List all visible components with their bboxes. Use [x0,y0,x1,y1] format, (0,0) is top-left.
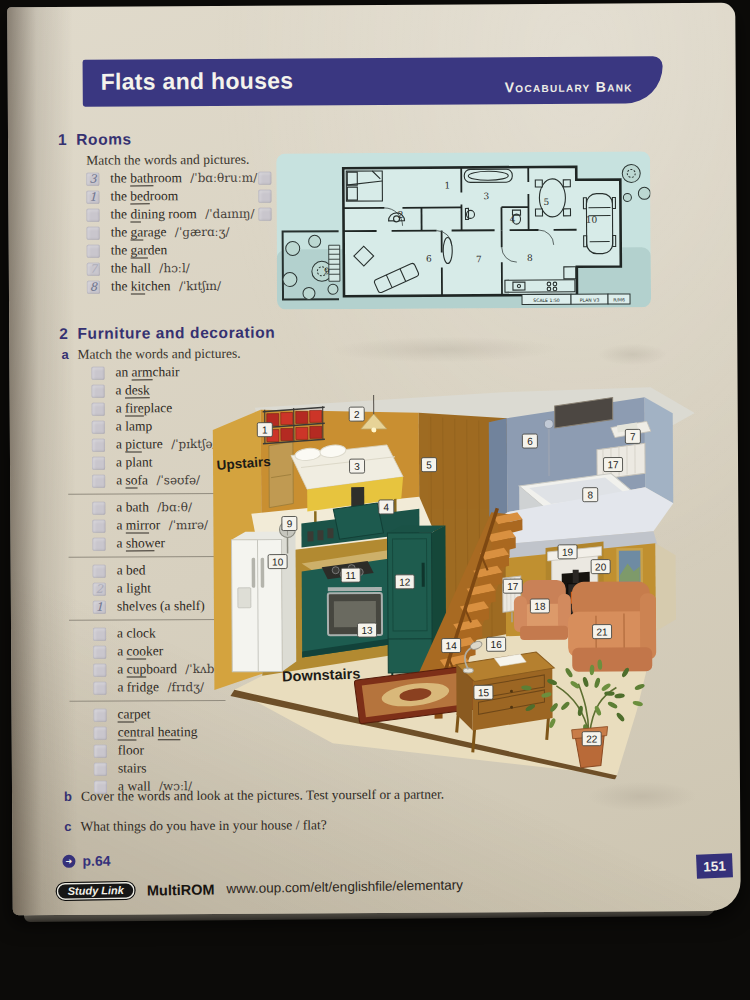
answer-box [92,474,105,487]
answer-box [92,384,105,397]
answer-box [93,663,106,676]
ipa: /ˈkɪtʃɪn/ [179,279,221,293]
item-b-row: b Cover the words and look at the pictur… [64,787,444,805]
number-tag-label: 6 [527,436,533,447]
circle-arrow-icon: ➜ [62,854,75,867]
answer-box [258,207,271,220]
photo-of-textbook-page: Flats and houses Vocabulary Bank 1Rooms … [0,0,750,1000]
plan-caption-ref: R/M6 [613,297,625,302]
plan-room-number: 4 [510,214,516,224]
word-label: central heating [118,724,198,740]
word-label: a clock [117,625,156,641]
vocabulary-bank-label: Vocabulary Bank [505,78,633,95]
eraser-smudge [329,336,559,363]
number-tag-label: 21 [596,626,608,637]
plan-room-number: 6 [426,254,432,264]
answer-box [94,708,107,721]
garden-path [329,245,340,281]
number-tag-label: 7 [630,431,636,442]
answer-box: 1 [86,190,99,203]
page-number: 151 [696,853,733,878]
word-row: the garage /ˈɡærɑːʒ/ [87,223,258,242]
plan-caption-scale: SCALE 1:50 [533,298,560,303]
number-tag-label: 20 [595,561,607,572]
answer-box [93,627,106,640]
word-label: floor [118,742,144,758]
word-label: a mirror /ˈmɪrə/ [116,517,208,534]
handwritten-answer: 8 [90,280,97,294]
plan-room-number: 2 [398,210,404,220]
word-label: a picture /ˈpɪktʃə/ [116,436,217,453]
plan-room-number: 9 [324,266,330,276]
answer-box: 7 [87,262,100,275]
number-tag-label: 17 [607,459,619,470]
word-row: 3the bathroom /ˈbɑːθruːm/ [86,169,257,188]
answer-box [258,189,271,202]
answer-box [92,456,105,469]
word-label: shelves (a shelf) [117,598,205,615]
section2a-instruction-row: a Match the words and pictures. [61,346,240,363]
word-label: a bed [117,562,146,578]
plan-room-number: 7 [476,254,482,264]
eraser-smudge [587,781,697,812]
floor-plan-illustration: 12345678910 SCALE 1:50 PLAN V3 R/M6 [276,151,651,309]
multirom-label: MultiROM [147,881,215,898]
word-label: the bathroom /ˈbɑːθruːm/ [110,170,257,187]
section2-title: Furniture and decoration [77,324,275,342]
number-tag-label: 8 [587,489,593,500]
shower-head [544,419,553,428]
answer-box [93,645,106,658]
rooms-word-list-col1: 3the bathroom /ˈbɑːθruːm/1the bedroomthe… [86,169,258,296]
answer-box [92,501,105,514]
answer-box [93,681,106,694]
number-tag-label: 17 [507,581,519,592]
answer-box [87,226,100,239]
number-tag-label: 18 [534,601,546,612]
group-divider [69,619,225,621]
textbook-page: Flats and houses Vocabulary Bank 1Rooms … [7,3,741,915]
number-tag-label: 5 [426,459,432,470]
sofa [568,581,657,672]
item-c-label: c [64,819,71,834]
section1-instruction: Match the words and pictures. [86,152,249,169]
answer-box [93,564,106,577]
ipa: /ˈbɑːθruːm/ [190,171,257,185]
word-row: the garden [87,241,258,260]
answer-box: 8 [87,280,100,293]
plan-room-number: 10 [586,215,598,225]
cooker-hood [333,503,383,539]
page-link: ➜ p.64 [62,853,110,869]
answer-box [87,244,100,257]
word-label: the dining room /ˈdaɪnɪŋ/ [110,206,254,223]
page-title: Flats and houses [101,67,294,95]
footer-row: Study Link MultiROM www.oup.com/elt/engl… [57,876,463,900]
number-tag-label: 13 [361,625,373,636]
answer-box [92,420,105,433]
ipa: /ˈdaɪnɪŋ/ [205,207,254,221]
word-label: the hall /hɔːl/ [111,260,190,276]
handwritten-answer: 7 [90,262,97,276]
answer-box [86,208,99,221]
number-tag-label: 3 [354,461,360,472]
number-tag-label: 19 [562,547,574,558]
answer-box [92,402,105,415]
word-row: an armchair [91,363,231,382]
plan-caption: SCALE 1:50 PLAN V3 R/M6 [522,294,630,305]
group-divider [69,556,225,558]
number-tag-label: 9 [287,518,293,529]
handwritten-answer: 1 [89,190,96,204]
word-label: a fireplace [116,400,173,416]
item-b-text: Cover the words and look at the pictures… [81,787,444,805]
ipa: /ˈsəʊfə/ [156,473,200,487]
downstairs-label: Downstairs [282,665,361,684]
number-tag-label: 2 [354,409,360,420]
word-row: the dining room /ˈdaɪnɪŋ/ [86,205,257,224]
section1-number: 1 [58,131,67,148]
answer-box [91,366,104,379]
number-tag-label: 10 [272,556,284,567]
page-link-text: p.64 [82,853,110,869]
plan-room-number: 8 [527,253,533,263]
handwritten-answer: 1 [96,600,103,614]
word-label: a plant [116,454,152,470]
ipa: /bɑːθ/ [157,500,192,514]
answer-box [258,171,271,184]
plan-caption-plan: PLAN V3 [580,298,600,303]
ipa: /ˈɡærɑːʒ/ [175,225,230,239]
word-label: a desk [116,382,150,398]
ipa: /ˈmɪrə/ [169,518,209,532]
answer-box: 3 [86,172,99,185]
eraser-smudge [597,343,667,365]
word-label: a shower [116,535,164,551]
answer-box: 2 [93,582,106,595]
number-tag-label: 11 [345,570,356,581]
answer-box [92,438,105,451]
fridge [231,531,296,671]
group-divider [68,493,224,495]
word-label: a sofa /ˈsəʊfə/ [116,472,200,489]
section2-number: 2 [59,325,68,342]
word-label: an armchair [115,364,179,380]
word-label: stairs [118,760,147,776]
number-tag-label: 22 [586,733,598,744]
handwritten-answer: 2 [96,582,103,596]
answer-box [94,726,107,739]
ipa: /frɪdʒ/ [167,680,204,694]
plan-room-number: 5 [544,197,550,207]
word-label: the garden [111,242,168,258]
word-label: a cooker [117,643,163,659]
word-row: 7the hall /hɔːl/ [87,259,258,278]
footer-url: www.oup.com/elt/englishfile/elementary [226,877,463,896]
answer-box [92,537,105,550]
answer-box: 1 [93,600,106,613]
word-label: a lamp [116,418,152,434]
handwritten-answer: 3 [89,172,96,186]
section2a-label: a [61,347,68,362]
number-tag-label: 12 [399,577,411,588]
word-label: carpet [118,706,151,722]
wall-picture [618,549,642,583]
section1-title: Rooms [76,130,132,147]
number-tag-label: 1 [262,424,268,435]
word-row: 8the kitchen /ˈkɪtʃɪn/ [87,277,258,296]
word-row: 1the bedroom [86,187,257,206]
ipa: /hɔːl/ [159,261,190,275]
number-tag-label: 14 [446,640,458,651]
number-tag-label: 15 [478,687,490,698]
plan-room-number: 1 [444,181,450,191]
word-label: the garage /ˈɡærɑːʒ/ [111,224,230,241]
group-divider [69,700,225,702]
study-link-badge: Study Link [57,882,136,900]
word-label: a light [117,580,151,596]
item-c-text: What things do you have in your house / … [80,817,326,835]
word-label: a fridge /frɪdʒ/ [117,679,204,696]
section2-heading: 2Furniture and decoration [59,324,275,343]
answer-box [92,519,105,532]
house-cutaway-illustration: Upstairs Downstairs 12345671789101112131… [205,379,697,782]
section2a-instruction: Match the words and pictures. [78,346,241,363]
word-label: a bath /bɑːθ/ [116,499,192,515]
answer-box [94,744,107,757]
word-label: the bedroom [110,188,178,204]
number-tag-label: 4 [383,502,389,513]
title-banner: Flats and houses Vocabulary Bank [83,56,663,107]
word-label: the kitchen /ˈkɪtʃɪn/ [111,278,221,295]
item-b-label: b [64,789,72,804]
number-tag-label: 16 [491,639,503,650]
section1-heading: 1Rooms [58,130,132,148]
answer-box [94,762,107,775]
item-c-row: c What things do you have in your house … [64,817,327,835]
plan-room-number: 3 [483,191,489,201]
